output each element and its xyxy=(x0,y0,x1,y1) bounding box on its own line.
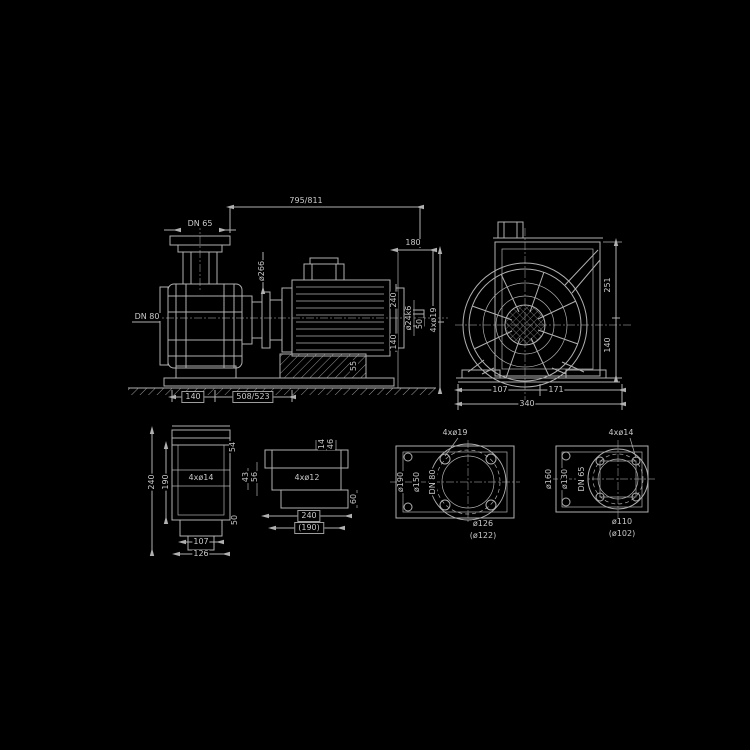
dim-base-width: 340 xyxy=(518,400,535,408)
dim-suction-recess: (ø122) xyxy=(469,532,497,540)
dim-bracket-height-inner: 190 xyxy=(162,473,170,490)
dim-plate-width-inner: (190) xyxy=(294,522,324,534)
dim-bracket-height-outer: 240 xyxy=(148,473,156,490)
dim-plate-side-right: 60 xyxy=(350,493,358,505)
dim-bracket-foot-width: 107 xyxy=(192,538,209,546)
dim-suction-outer-dia: ø190 xyxy=(397,471,405,493)
dim-end-height-lower: 140 xyxy=(604,336,612,353)
dim-bracket-boss-width: 50 xyxy=(231,514,239,526)
dim-foot-front: 140 xyxy=(181,391,204,403)
dim-discharge-outer-dia: ø160 xyxy=(545,468,553,490)
dim-coupling-dia: ø266 xyxy=(258,260,266,282)
end-view xyxy=(455,222,632,410)
dim-foot-right: 171 xyxy=(547,386,564,394)
dim-height-upper: 240 xyxy=(390,291,398,308)
note-plate-holes: 4xø12 xyxy=(294,474,321,482)
dim-discharge-bolt-circle: ø130 xyxy=(561,468,569,490)
dim-bracket-foot-outer: 126 xyxy=(192,550,209,558)
suction-flange-view xyxy=(390,438,520,524)
dim-base-length: 508/523 xyxy=(232,391,273,403)
dim-end-height-upper: 251 xyxy=(604,276,612,293)
dim-discharge-recess: (ø102) xyxy=(608,530,636,538)
dim-plate-width-outer: 240 xyxy=(297,510,320,522)
drawing-linework xyxy=(0,0,750,750)
dim-height-lower: 140 xyxy=(390,333,398,350)
dim-motor-end: 180 xyxy=(404,239,421,247)
note-bracket-holes: 4xø14 xyxy=(188,474,215,482)
dim-shaft-end: ø24k6 xyxy=(405,305,413,332)
dim-plate-side-a: 43 xyxy=(242,471,250,483)
label-discharge-nominal: DN 65 xyxy=(578,466,586,493)
dim-suction-bore: ø126 xyxy=(472,520,494,528)
dim-plate-edge-b: 46 xyxy=(327,438,335,450)
side-elevation-view xyxy=(128,207,448,402)
dim-plate-edge-a: 14 xyxy=(318,438,326,450)
dim-bracket-top-width: 54 xyxy=(229,441,237,453)
dim-foot-left: 107 xyxy=(491,386,508,394)
dim-base-height: 55 xyxy=(350,360,358,372)
dim-overall-length: 795/811 xyxy=(288,197,323,205)
dim-plate-side-b: 56 xyxy=(251,471,259,483)
dim-suction-bolt-circle: ø150 xyxy=(413,471,421,493)
dim-shaft-length: 50 xyxy=(416,318,424,330)
label-discharge-flange: DN 65 xyxy=(187,220,214,228)
note-discharge-bolt-holes: 4xø14 xyxy=(608,429,635,437)
note-suction-bolt-holes: 4xø19 xyxy=(442,429,469,437)
dim-discharge-bore: ø110 xyxy=(611,518,633,526)
pump-dimensional-drawing: 795/811 DN 65 ø266 180 240 140 ø24k6 50 … xyxy=(0,0,750,750)
note-foot-holes: 4xø19 xyxy=(430,307,438,334)
label-suction-flange: DN 80 xyxy=(134,313,161,321)
label-suction-nominal: DN 80 xyxy=(429,469,437,496)
